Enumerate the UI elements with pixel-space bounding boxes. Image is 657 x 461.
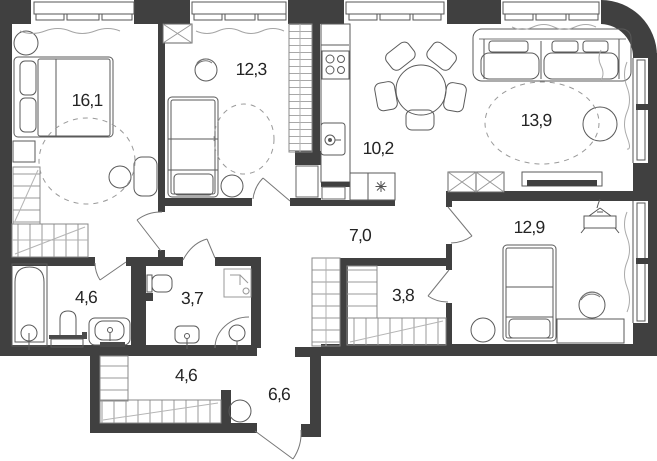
- svg-text:10,2: 10,2: [363, 138, 394, 158]
- svg-text:4,6: 4,6: [175, 365, 197, 385]
- svg-text:6,6: 6,6: [268, 384, 290, 404]
- svg-text:12,3: 12,3: [236, 59, 267, 79]
- svg-text:16,1: 16,1: [72, 90, 103, 110]
- svg-text:12,9: 12,9: [514, 217, 545, 237]
- svg-text:13,9: 13,9: [521, 110, 552, 130]
- svg-text:4,6: 4,6: [75, 287, 97, 307]
- svg-text:3,8: 3,8: [392, 285, 414, 305]
- svg-text:7,0: 7,0: [349, 225, 372, 245]
- svg-text:3,7: 3,7: [181, 288, 203, 308]
